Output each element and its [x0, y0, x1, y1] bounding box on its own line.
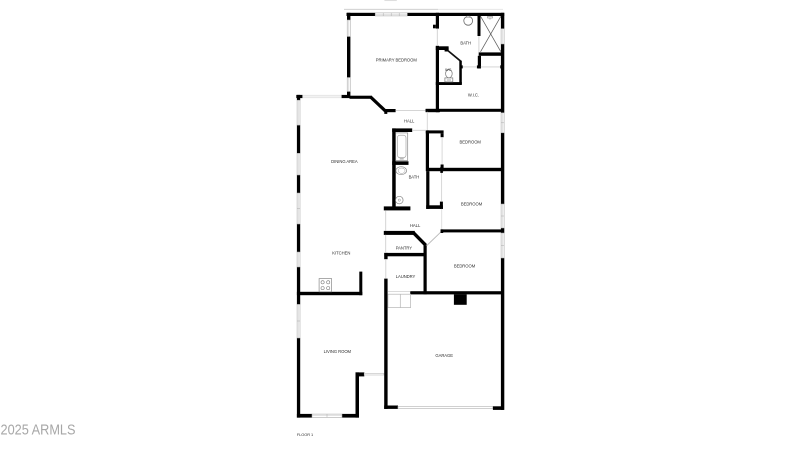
svg-text:HALL: HALL — [410, 223, 421, 228]
svg-text:BATH: BATH — [409, 175, 420, 180]
svg-text:DINING AREA: DINING AREA — [331, 159, 358, 164]
svg-text:FLOOR 1: FLOOR 1 — [297, 432, 313, 437]
svg-text:BEDROOM: BEDROOM — [460, 140, 482, 145]
svg-text:2025 ARMLS: 2025 ARMLS — [1, 422, 76, 438]
svg-text:BEDROOM: BEDROOM — [461, 202, 483, 207]
svg-text:LAUNDRY: LAUNDRY — [396, 274, 416, 279]
svg-text:W.I.C.: W.I.C. — [468, 93, 479, 98]
svg-text:WC: WC — [445, 67, 452, 72]
svg-text:HALL: HALL — [404, 118, 415, 123]
svg-text:PRIMARY BEDROOM: PRIMARY BEDROOM — [376, 58, 418, 63]
svg-text:PANTRY: PANTRY — [396, 246, 413, 251]
svg-text:BEDROOM: BEDROOM — [454, 264, 476, 269]
svg-text:GARAGE: GARAGE — [435, 353, 453, 358]
svg-text:LIVING ROOM: LIVING ROOM — [324, 349, 352, 354]
svg-text:BATH: BATH — [460, 41, 471, 46]
svg-text:KITCHEN: KITCHEN — [332, 251, 350, 256]
